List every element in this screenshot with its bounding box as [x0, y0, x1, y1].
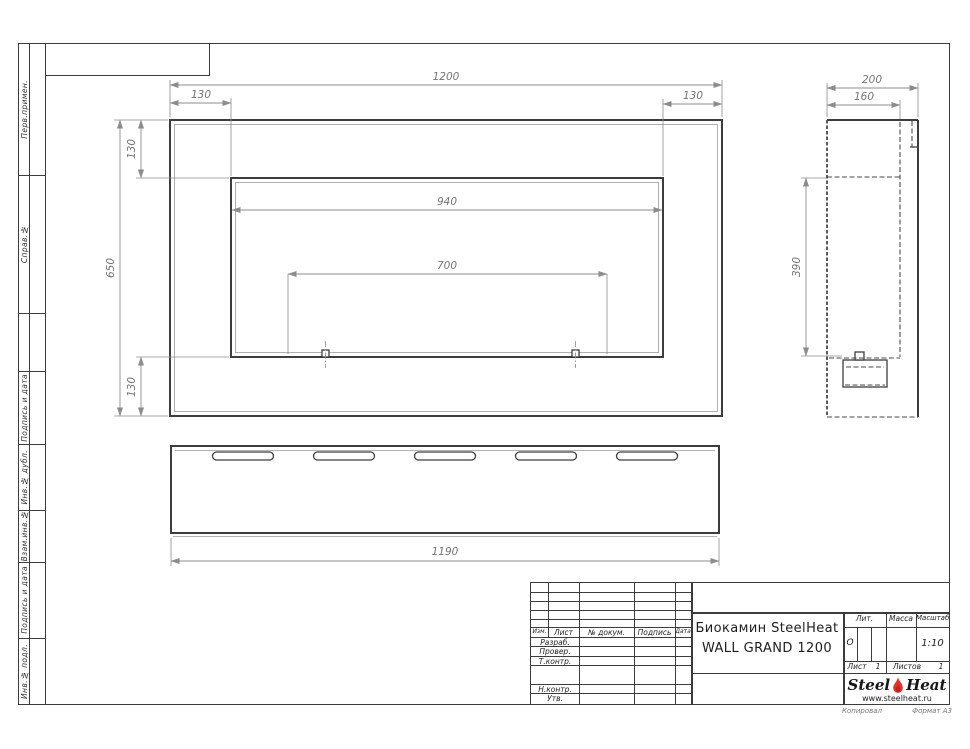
reference-stamp-cell	[45, 43, 210, 76]
logo-cell: Steel Heat www.steelheat.ru	[843, 673, 951, 706]
lit-value: О	[843, 638, 857, 648]
col-doc: № докум.	[579, 628, 634, 637]
margin-label-inv-podl: Инв.№ подл.	[18, 638, 30, 705]
row-razrab: Разраб.	[531, 638, 579, 647]
row-utv: Утв.	[531, 694, 579, 703]
sheet-value: 1	[871, 662, 885, 671]
scale-value: 1:10	[916, 638, 949, 649]
margin-label-inv-dubl: Инв.№ дубл.	[18, 444, 30, 510]
col-list: Лист	[548, 628, 579, 637]
row-nkontr: Н.контр.	[531, 685, 579, 694]
strip-line	[18, 313, 45, 314]
flame-icon	[891, 677, 905, 694]
sheets-label: Листов	[887, 662, 927, 671]
drawing-sheet: 1200 130 130 940 700 650 130 130	[0, 0, 970, 749]
title-block: Изм. Лист № докум. Подпись Дата Разраб. …	[530, 582, 950, 705]
logo-steel-text: Steel	[848, 676, 891, 694]
scale-label: Масштаб	[916, 614, 949, 622]
col-izm: Изм.	[531, 628, 548, 635]
logo-heat-text: Heat	[906, 676, 946, 694]
row-prover: Провер.	[531, 647, 579, 656]
kopiroval-note: Копировал	[832, 707, 892, 715]
row-tkontr: Т.контр.	[531, 657, 579, 666]
margin-label-sprav-no: Справ.№	[18, 175, 30, 313]
product-name-line2: WALL GRAND 1200	[691, 641, 843, 656]
margin-label-podpis-data-2: Подпись и дата	[18, 562, 30, 638]
format-note: Формат А3	[903, 707, 961, 715]
margin-label-vzam-inv: Взам.инв.№	[18, 510, 30, 562]
logo-website: www.steelheat.ru	[862, 694, 932, 703]
product-name-line1: Биокамин SteelHeat	[691, 621, 843, 636]
sheet-label: Лист	[843, 662, 871, 671]
margin-label-perv-primen: Перв.примен.	[18, 44, 30, 175]
col-date: Дата	[675, 628, 691, 635]
col-sign: Подпись	[634, 628, 675, 637]
lit-label: Лит.	[843, 614, 886, 623]
margin-label-podpis-data-1: Подпись и дата	[18, 371, 30, 444]
mass-label: Масса	[886, 614, 916, 623]
sheets-value: 1	[933, 662, 949, 671]
